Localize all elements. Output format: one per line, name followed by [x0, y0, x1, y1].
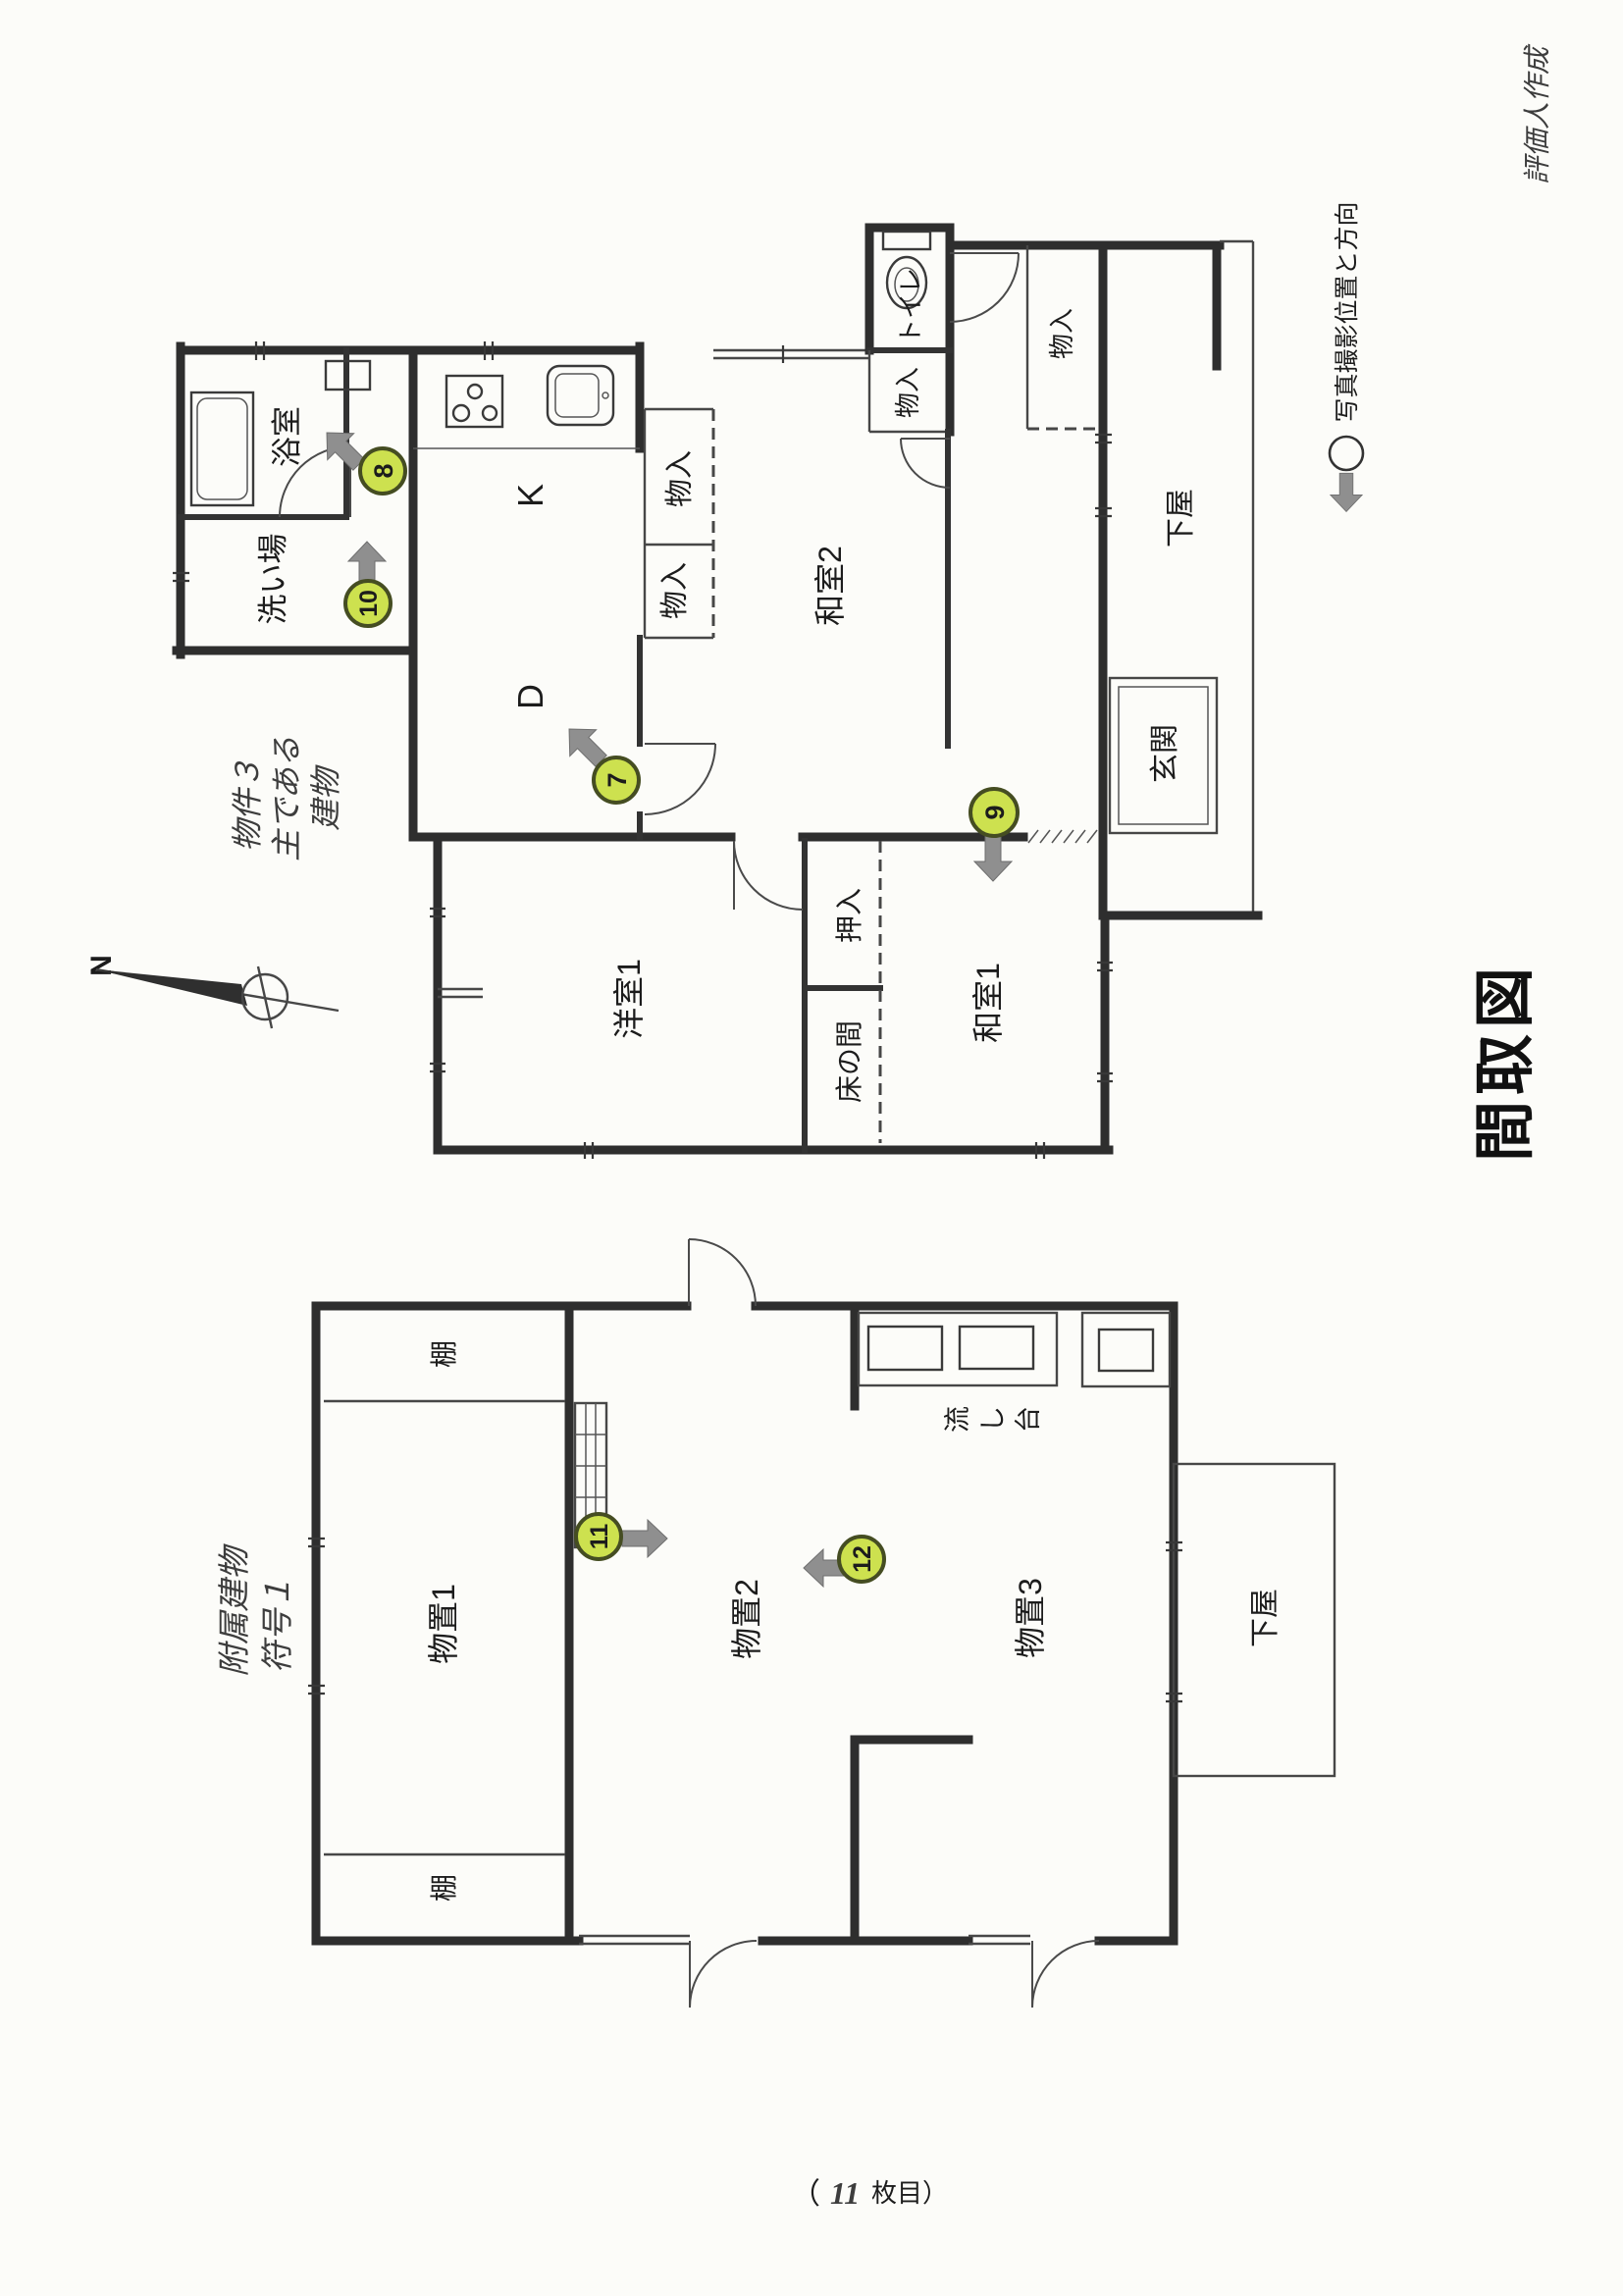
- photo-marker-11: 11: [576, 1514, 667, 1559]
- sink-counter-icon: [859, 1313, 1170, 1386]
- main-note-line3: 建物: [308, 764, 343, 831]
- photo-marker-10: 10: [345, 542, 391, 626]
- main-building-walls: [177, 228, 1258, 1150]
- room-label-oshiire: 押入: [834, 888, 864, 943]
- photo-direction-arrow: [622, 1520, 667, 1557]
- room-label-yoshitsu1: 洋室1: [611, 959, 647, 1039]
- legend-label: 写真撮影位置と方向: [1334, 201, 1361, 422]
- photo-marker-7: 7: [556, 716, 639, 803]
- footer-sheet-suffix: 枚目）: [871, 2178, 948, 2208]
- room-label-geya-attached: 下屋: [1249, 1589, 1282, 1647]
- compass: N: [85, 955, 339, 1028]
- kitchen-sink-icon: [548, 366, 613, 425]
- room-label-closet-a: 物入: [663, 450, 696, 507]
- attached-note-line2: 符号１: [261, 1577, 296, 1674]
- photo-marker-number: 9: [980, 805, 1010, 819]
- genkan-step-hatch: [1028, 830, 1097, 843]
- photo-marker-8: 8: [314, 420, 405, 494]
- label-shelf-bottom: 棚: [429, 1874, 459, 1902]
- main-building-note: 物件３ 主である 建物: [230, 736, 343, 861]
- label-shelf-top: 棚: [429, 1340, 459, 1368]
- photo-marker-12: 12: [804, 1537, 884, 1587]
- photo-marker-number: 12: [849, 1545, 876, 1573]
- room-label-toilet: トイレ: [896, 268, 925, 344]
- room-label-geya-main: 下屋: [1165, 489, 1197, 548]
- room-label-closet-c: 物入: [893, 367, 922, 418]
- footer-page-number: 11: [830, 2175, 860, 2211]
- room-label-kitchen: K: [510, 484, 550, 507]
- photo-marker-number: 7: [602, 772, 632, 787]
- photo-marker-number: 8: [369, 463, 398, 478]
- room-label-washitsu2: 和室2: [812, 546, 848, 626]
- footer-open-paren: （: [791, 2178, 820, 2211]
- legend-arrow-icon: [1331, 473, 1362, 511]
- room-label-storage1: 物置1: [426, 1584, 461, 1664]
- floorplan-drawing: 浴室 洗い場 K D 物入 物入 和室2 トイレ 物入 物入 下屋 玄関 洋室1…: [0, 0, 1623, 2296]
- main-building: 浴室 洗い場 K D 物入 物入 和室2 トイレ 物入 物入 下屋 玄関 洋室1…: [173, 228, 1258, 1159]
- attached-building: 棚 棚 物置1 物置2 物置3 流し台 下屋 附属建物 符号１: [218, 1239, 1335, 2008]
- scanned-floorplan-page: 浴室 洗い場 K D 物入 物入 和室2 トイレ 物入 物入 下屋 玄関 洋室1…: [0, 0, 1623, 2296]
- room-label-genkan: 玄関: [1149, 724, 1181, 783]
- room-label-washitsu1: 和室1: [970, 963, 1006, 1043]
- stove-icon: [413, 376, 640, 448]
- photo-direction-arrow: [974, 836, 1012, 881]
- room-label-bath: 浴室: [270, 406, 304, 467]
- attached-note-line1: 附属建物: [218, 1543, 253, 1677]
- photo-marker-number: 11: [586, 1524, 613, 1550]
- evaluator-note: 評価人作成: [1523, 43, 1553, 184]
- room-label-storage2: 物置2: [729, 1579, 764, 1659]
- room-label-closet-b: 物入: [658, 562, 691, 619]
- page-title: 間取図: [1473, 962, 1540, 1162]
- label-sink-counter: 流し台: [943, 1397, 1043, 1433]
- photo-marker-number: 10: [355, 590, 383, 617]
- room-label-wash: 洗い場: [256, 534, 290, 625]
- room-label-dining: D: [510, 684, 550, 709]
- room-label-closet-d: 物入: [1047, 308, 1076, 359]
- room-label-storage3: 物置3: [1013, 1578, 1048, 1658]
- legend-circle-icon: [1330, 437, 1363, 470]
- page-footer: （ 11 枚目）: [791, 2175, 948, 2211]
- main-note-line2: 主である: [269, 736, 304, 861]
- room-label-tokonoma: 床の間: [834, 1020, 864, 1103]
- attached-building-note: 附属建物 符号１: [218, 1543, 296, 1677]
- compass-needle-icon: [96, 969, 247, 1006]
- photo-legend: 写真撮影位置と方向: [1330, 201, 1363, 511]
- main-note-line1: 物件３: [230, 757, 265, 852]
